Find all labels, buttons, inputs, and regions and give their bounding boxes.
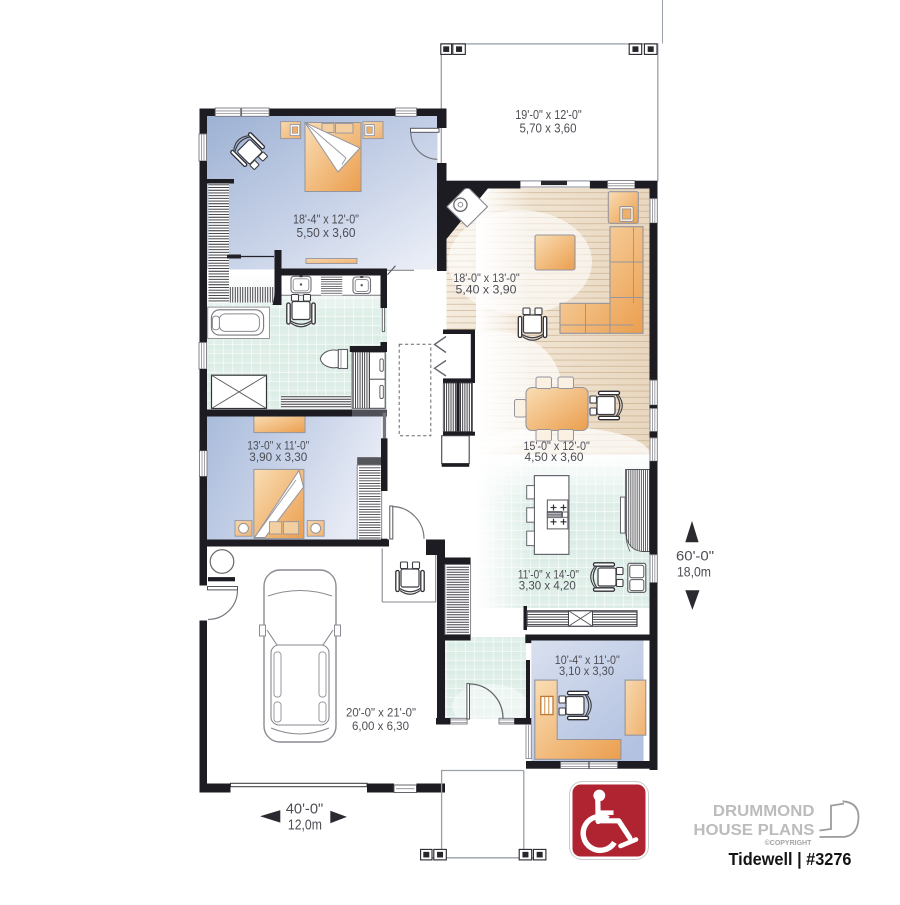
- svg-text:5,70 x 3,60: 5,70 x 3,60: [520, 121, 577, 136]
- svg-text:5,40 x 3,90: 5,40 x 3,90: [456, 283, 517, 297]
- svg-text:Tidewell | #3276: Tidewell | #3276: [729, 849, 852, 869]
- svg-text:DRUMMOND: DRUMMOND: [713, 803, 815, 820]
- svg-text:3,10 x 3,30: 3,10 x 3,30: [559, 665, 614, 678]
- svg-text:5,50 x 3,60: 5,50 x 3,60: [297, 226, 356, 240]
- svg-text:20'-0" x 21'-0": 20'-0" x 21'-0": [346, 706, 416, 720]
- svg-text:18,0m: 18,0m: [677, 565, 711, 580]
- svg-text:3,30 x 4,20: 3,30 x 4,20: [519, 580, 576, 593]
- svg-text:18'-4" x 12'-0": 18'-4" x 12'-0": [293, 213, 359, 227]
- svg-text:HOUSE PLANS: HOUSE PLANS: [693, 822, 814, 839]
- svg-text:60'-0": 60'-0": [676, 549, 714, 564]
- svg-text:6,00 x 6,30: 6,00 x 6,30: [352, 719, 409, 733]
- svg-text:3,90 x 3,30: 3,90 x 3,30: [249, 450, 307, 464]
- svg-text:©COPYRIGHT: ©COPYRIGHT: [765, 839, 812, 847]
- svg-text:4,50 x 3,60: 4,50 x 3,60: [525, 450, 584, 464]
- svg-text:12,0m: 12,0m: [288, 818, 322, 834]
- svg-text:40'-0": 40'-0": [286, 802, 324, 818]
